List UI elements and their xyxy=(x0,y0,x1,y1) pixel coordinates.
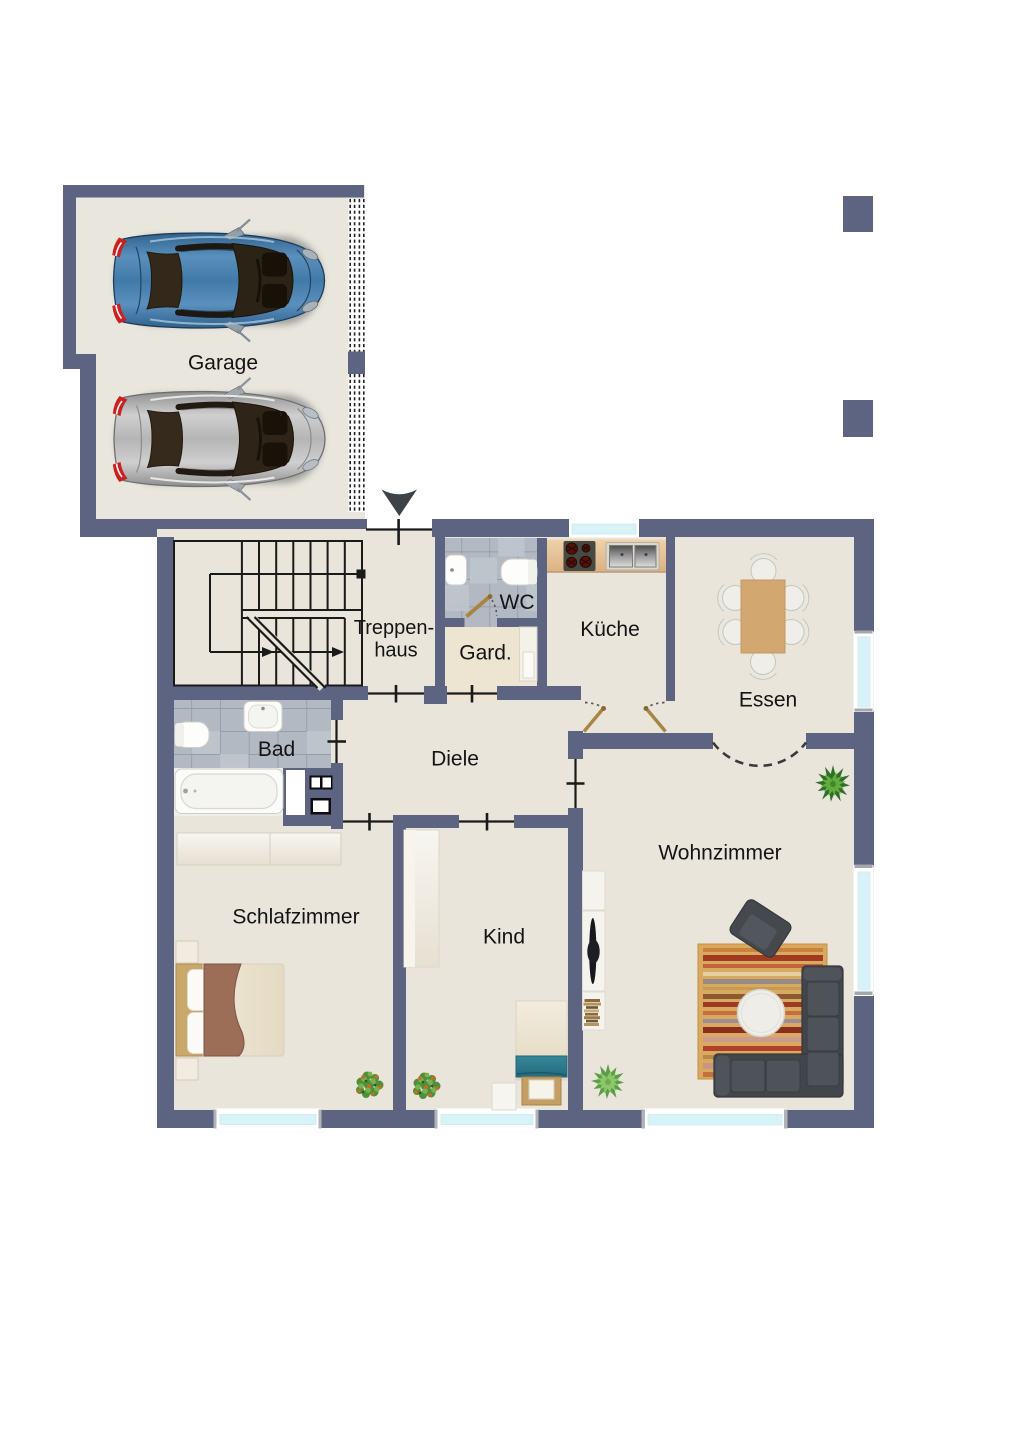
svg-text:Garage: Garage xyxy=(188,352,258,375)
svg-text:Wohnzimmer: Wohnzimmer xyxy=(658,842,781,865)
svg-text:Gard.: Gard. xyxy=(459,642,512,665)
svg-text:WC: WC xyxy=(500,591,535,614)
svg-text:Diele: Diele xyxy=(431,748,479,771)
svg-text:Küche: Küche xyxy=(580,618,640,641)
svg-text:Treppen-: Treppen- xyxy=(354,617,434,639)
svg-text:Essen: Essen xyxy=(739,689,797,712)
svg-text:haus: haus xyxy=(374,640,417,662)
svg-text:Kind: Kind xyxy=(483,926,525,949)
svg-text:Bad: Bad xyxy=(258,738,295,761)
svg-text:Schlafzimmer: Schlafzimmer xyxy=(232,906,359,929)
